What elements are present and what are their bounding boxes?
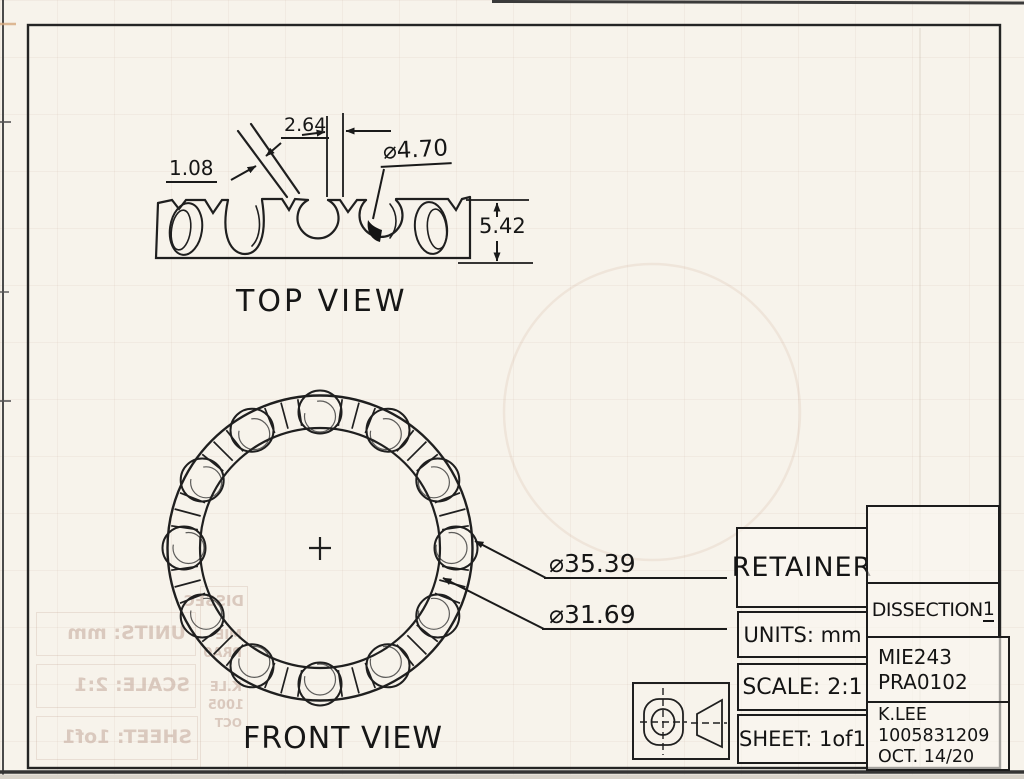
ball-pocket-b-inner bbox=[252, 206, 259, 246]
title-block-author: K.LEE 1005831209 OCT. 14/20 bbox=[866, 701, 1010, 771]
ball-pocket-inner bbox=[239, 646, 270, 677]
title-block-scale: SCALE: 2:1 bbox=[737, 663, 868, 711]
scan-edge-top bbox=[492, 2, 1024, 4]
bridge-hatch-line bbox=[214, 442, 233, 461]
bridge-hatch-line bbox=[175, 580, 201, 587]
bridge-hatch-line bbox=[407, 635, 426, 654]
bridge-hatch-line bbox=[281, 667, 288, 693]
dim-pocket-diameter-label: ⌀4.70 bbox=[379, 135, 451, 168]
bridge-hatch-line bbox=[226, 645, 243, 666]
ball-pocket-c bbox=[297, 200, 338, 238]
ball-pocket-inner bbox=[191, 467, 222, 498]
title-block-course: MIE243 PRA0102 bbox=[866, 636, 1010, 703]
dim-slot-width-label: 2.64 bbox=[281, 114, 329, 139]
date: OCT. 14/20 bbox=[878, 747, 974, 768]
scanned-engineering-drawing: { "views": { "top_label": "TOP VIEW", "f… bbox=[0, 0, 1024, 779]
ball-pocket-e-inner bbox=[425, 208, 448, 250]
ball-pocket-a bbox=[167, 201, 206, 257]
bridge-hatch-line bbox=[439, 509, 465, 516]
ball-pocket-inner bbox=[418, 598, 449, 629]
dim-4.70-leader bbox=[373, 169, 384, 219]
ball-pocket-inner bbox=[191, 598, 222, 629]
dim-35.39-leader bbox=[475, 541, 546, 578]
bridge-hatch-line bbox=[352, 667, 359, 693]
ball-pocket bbox=[416, 595, 459, 638]
dim-inner-diameter-label: ⌀31.69 bbox=[549, 600, 636, 629]
front-view-label: FRONT VIEW bbox=[243, 721, 443, 756]
dim-notch-width-label: 1.08 bbox=[166, 156, 217, 183]
bridge-hatch-line bbox=[281, 403, 288, 429]
title-block-empty-cell bbox=[866, 505, 1000, 584]
bridge-hatch-line bbox=[365, 663, 375, 688]
projection-symbol bbox=[633, 683, 729, 759]
ball-pocket bbox=[181, 459, 224, 502]
ball-pocket-b bbox=[225, 200, 263, 254]
ball-pocket-inner bbox=[370, 646, 401, 677]
dim-section-height-label: 5.42 bbox=[479, 214, 526, 238]
strip-top-edge bbox=[158, 200, 228, 213]
dim-1.08-leader bbox=[231, 166, 256, 180]
title-block-part-name: RETAINER bbox=[736, 527, 868, 608]
ball-pocket bbox=[231, 644, 274, 687]
title-block-units: UNITS: mm bbox=[737, 611, 868, 658]
project-number: 1 bbox=[983, 598, 995, 622]
projection-symbol-box bbox=[633, 683, 729, 759]
course-code: MIE243 bbox=[878, 645, 952, 670]
bridge-hatch-line bbox=[175, 509, 201, 516]
bridge-hatch-line bbox=[265, 408, 275, 433]
ball-pocket-inner bbox=[239, 419, 270, 450]
ball-pocket-inner bbox=[418, 467, 449, 498]
practical-code: PRA0102 bbox=[878, 670, 968, 695]
bridge-hatch-line bbox=[214, 635, 233, 654]
bridge-hatch-line bbox=[180, 593, 205, 603]
bridge-hatch-line bbox=[435, 493, 460, 503]
bridge-hatch-line bbox=[352, 403, 359, 429]
project-name: DISSECTION bbox=[872, 599, 983, 621]
title-block-project: DISSECTION1 bbox=[866, 582, 1000, 638]
author-name: K.LEE bbox=[878, 705, 927, 726]
top-view-label: TOP VIEW bbox=[236, 284, 408, 319]
ball-pocket-inner bbox=[370, 419, 401, 450]
front-view bbox=[163, 391, 478, 706]
title-block-sheet: SHEET: 1of1 bbox=[737, 714, 868, 764]
top-view-dimensions bbox=[231, 113, 533, 263]
pocket-shadow-wedge bbox=[368, 220, 382, 242]
scanner-bed bbox=[0, 775, 1024, 779]
ball-pocket-e bbox=[412, 200, 449, 255]
ghost-circle bbox=[504, 264, 800, 560]
dim-outer-diameter-label: ⌀35.39 bbox=[549, 549, 636, 578]
bridge-hatch-line bbox=[407, 442, 426, 461]
ball-pocket bbox=[367, 409, 410, 452]
student-number: 1005831209 bbox=[878, 726, 989, 747]
